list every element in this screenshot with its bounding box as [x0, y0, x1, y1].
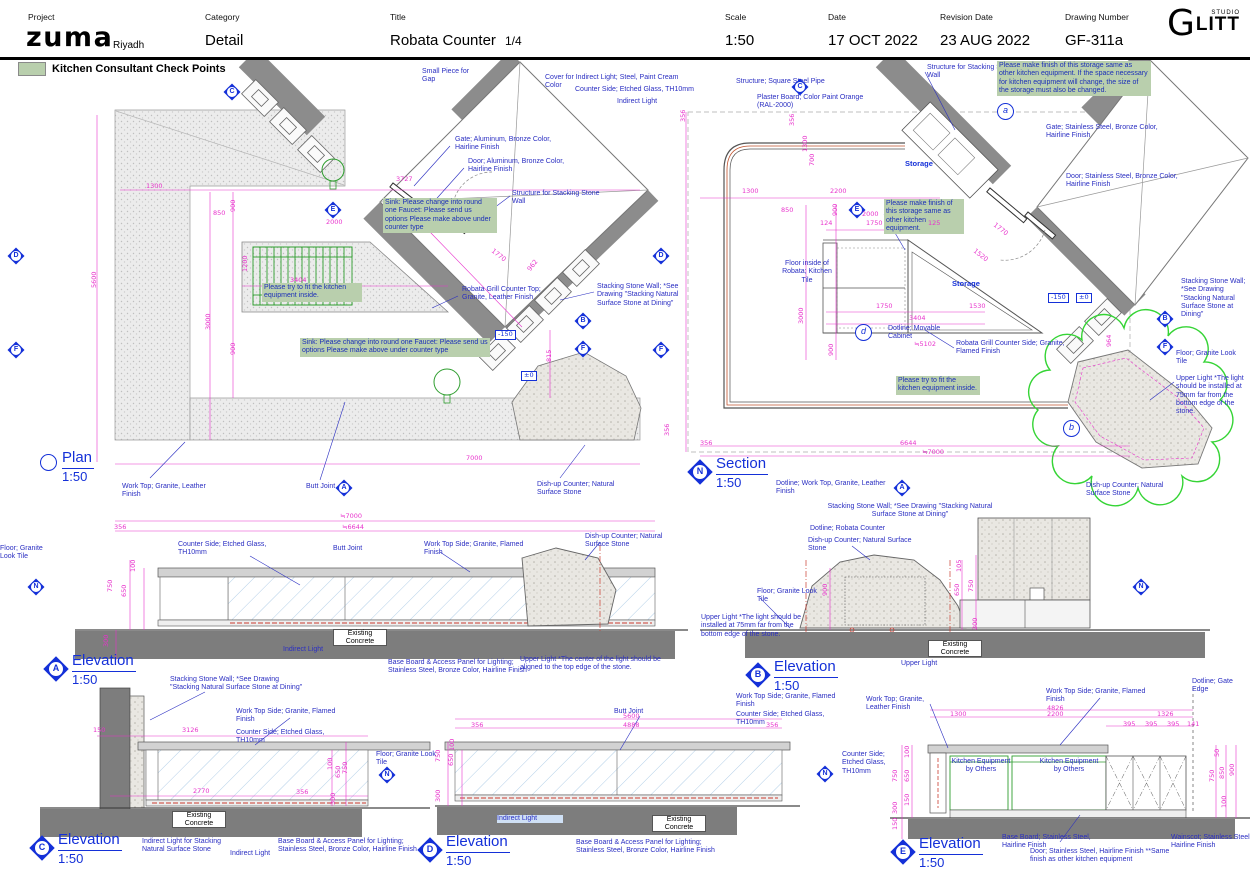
annotation-note: Kitchen Equipment by Others — [950, 758, 1012, 775]
reference-circle-b: b — [1063, 420, 1080, 437]
project-city: Riyadh — [113, 40, 144, 51]
annotation-note: Counter Side; Etched Glass, TH10mm — [736, 711, 834, 728]
annotation-note: Door; Stainless Steel, Bronze Color, Hai… — [1066, 173, 1188, 190]
date-label: Date — [828, 12, 846, 22]
annotation-note: Structure for Stacking Stone Wall — [512, 190, 602, 207]
annotation-note: Work Top; Granite, Leather Finish — [122, 483, 214, 500]
dimension-label: 650 — [904, 770, 912, 782]
dimension-label: 356 — [296, 789, 308, 797]
annotation-note: Indirect Light — [617, 98, 677, 106]
annotation-note: Robata Grill Counter Side; Granite, Flam… — [956, 340, 1076, 357]
annotation-note: Floor; Granite Look Tile — [0, 545, 58, 562]
dimension-label: 300 — [892, 802, 900, 814]
revision-value: 23 AUG 2022 — [940, 32, 1030, 49]
dimension-label: 100 — [904, 746, 912, 758]
dimension-label: 750 — [1209, 770, 1217, 782]
dimension-label: 1750 — [876, 303, 893, 311]
dimension-label: ≒7000 — [340, 513, 362, 521]
title-block: Project zuma Riyadh Category Detail Titl… — [0, 0, 1250, 60]
dimension-label: 100 — [130, 560, 138, 572]
annotation-note: Work Top Side; Granite, Flamed Finish — [1046, 688, 1158, 705]
annotation-note: Work Top; Granite, Leather Finish — [866, 696, 938, 713]
level-tag: ±0 — [1076, 293, 1092, 303]
annotation-note: Work Top Side; Granite, Flamed Finish — [424, 541, 532, 558]
annotation-note: Dish-up Counter; Natural Surface Stone — [808, 537, 918, 554]
dimension-label: 7000 — [466, 455, 483, 463]
dimension-label: 100 — [1221, 796, 1229, 808]
dimension-label: 850 — [1219, 767, 1227, 779]
dimension-label: 1200 — [242, 255, 250, 272]
scale-label: Scale — [725, 12, 746, 22]
annotation-note: Work Top Side; Granite, Flamed Finish — [736, 693, 846, 710]
dimension-label: 3404 — [909, 315, 926, 323]
material-tag: Existing Concrete — [928, 640, 982, 657]
view-title: Elevation1:50 — [774, 658, 838, 693]
check-point-swatch — [18, 62, 46, 76]
view-title: Plan1:50 — [62, 449, 94, 484]
annotation-note: Door; Aluminum, Bronze Color, Hairline F… — [468, 158, 578, 175]
dimension-label: 5600 — [91, 271, 99, 288]
consultant-check-note: Please try to fit the kitchen equipment … — [262, 283, 362, 302]
title-label: Title — [390, 12, 406, 22]
dimension-label: 356 — [789, 114, 797, 126]
title-page: 1/4 — [505, 34, 522, 48]
dimension-label: 395 — [1123, 721, 1135, 729]
annotation-note: Robata Grill Counter Top; Granite, Leath… — [462, 286, 548, 303]
title-value: Robata Counter — [390, 32, 496, 49]
dimension-label: 1770 — [489, 248, 507, 264]
dimension-label: 850 — [781, 207, 793, 215]
dimension-label: 650 — [448, 754, 456, 766]
annotation-note: Upper Light *The light should be install… — [701, 614, 816, 639]
revision-label: Revision Date — [940, 12, 993, 22]
legend-label: Kitchen Consultant Check Points — [52, 63, 226, 75]
annotation-note: Indirect Light — [283, 646, 345, 654]
dimension-label: 356 — [700, 440, 712, 448]
reference-circle-o — [40, 454, 57, 471]
dimension-label: 1770 — [991, 222, 1009, 238]
glitt-logo: G STUDIO LITT — [1167, 4, 1240, 44]
dimension-label: ≒5102 — [914, 341, 936, 349]
annotation-note: Base Board & Access Panel for Lighting; … — [278, 838, 418, 855]
dimension-label: 356 — [766, 722, 778, 730]
annotation-note: Plaster Board; Color Paint Orange (RAL-2… — [757, 94, 869, 111]
dimension-label: 900 — [822, 584, 830, 596]
dimension-label: 700 — [809, 154, 817, 166]
category-label: Category — [205, 12, 240, 22]
dimension-label: 300 — [972, 618, 980, 630]
annotation-note: Gate; Stainless Steel, Bronze Color, Hai… — [1046, 124, 1164, 141]
level-tag: -150 — [1048, 293, 1069, 303]
dimension-label: 6644 — [900, 440, 917, 448]
dimension-label: 100 — [449, 739, 457, 751]
annotation-note: Counter Side; Etched Glass, TH10mm — [178, 541, 273, 558]
annotation-note: Stacking Stone Wall; *See Drawing "Stack… — [1181, 278, 1247, 319]
annotation-note: Structure; Square Steel Pipe — [736, 78, 834, 86]
annotation-note: Floor; Granite Look Tile — [1176, 350, 1238, 367]
material-tag: Existing Concrete — [333, 629, 387, 646]
number-label: Drawing Number — [1065, 12, 1129, 22]
view-title: Elevation1:50 — [446, 833, 510, 868]
dimension-label: 2000 — [326, 219, 343, 227]
dimension-label: 1750 — [866, 220, 883, 228]
dimension-label: 750 — [435, 750, 443, 762]
dimension-label: 3000 — [205, 313, 213, 330]
annotation-note: Stacking Stone Wall; *See Drawing "Stack… — [170, 676, 305, 693]
dimension-label: 900 — [1229, 764, 1237, 776]
dimension-label: 1520 — [971, 248, 989, 264]
category-value: Detail — [205, 32, 243, 49]
annotation-note: Upper Light *The light should be install… — [1176, 375, 1246, 416]
dimension-label: 2200 — [830, 188, 847, 196]
consultant-check-note: Please make finish of this storage same … — [997, 61, 1151, 96]
dimension-label: 2200 — [1047, 711, 1064, 719]
annotation-note: Base Board & Access Panel for Lighting; … — [388, 659, 528, 676]
dimension-label: 900 — [828, 344, 836, 356]
dimension-label: 150 — [93, 727, 105, 735]
dimension-label: 650 — [121, 585, 129, 597]
dimension-label: 356 — [114, 524, 126, 532]
annotation-note: Dish-up Counter; Natural Surface Stone — [1086, 482, 1184, 499]
annotation-note: Kitchen Equipment by Others — [1036, 758, 1102, 775]
glitt-logo-litt: LITT — [1196, 16, 1240, 34]
date-value: 17 OCT 2022 — [828, 32, 918, 49]
number-value: GF-311a — [1065, 32, 1123, 49]
view-title: Elevation1:50 — [72, 652, 136, 687]
dimension-label: 5600 — [623, 713, 640, 721]
dimension-label: 1530 — [969, 303, 986, 311]
reference-circle-d: d — [855, 324, 872, 341]
storage-label: Storage — [905, 160, 933, 169]
drawing-sheet: Project zuma Riyadh Category Detail Titl… — [0, 0, 1250, 883]
annotation-note: Floor; Granite Look Tile — [376, 751, 438, 768]
level-tag: ±0 — [521, 371, 537, 381]
dimension-label: 850 — [213, 210, 225, 218]
dimension-label: 3126 — [182, 727, 199, 735]
consultant-check-note: Please try to fit the kitchen equipment … — [896, 376, 980, 395]
dimension-label: 900 — [230, 200, 238, 212]
dimension-label: 150 — [904, 794, 912, 806]
dimension-label: 2770 — [193, 788, 210, 796]
dimension-label: 3000 — [798, 307, 806, 324]
view-title: Elevation1:50 — [919, 835, 983, 870]
dimension-label: 300 — [435, 790, 443, 802]
dimension-label: 1326 — [1157, 711, 1174, 719]
dimension-label: 300 — [103, 635, 111, 647]
view-title: Section1:50 — [716, 455, 768, 490]
dimension-label: 2000 — [862, 211, 879, 219]
dimension-label: 750 — [968, 580, 976, 592]
annotation-note: Door; Stainless Steel, Hairline Finish *… — [1030, 848, 1185, 865]
dimension-label: 150 — [892, 818, 900, 830]
annotation-note: Dish-up Counter; Natural Surface Stone — [585, 533, 673, 550]
dimension-label: 3727 — [396, 176, 413, 184]
dimension-label: 50 — [1214, 749, 1222, 757]
dimension-label: 141 — [1187, 721, 1199, 729]
dimension-label: 1300 — [742, 188, 759, 196]
storage-label: Storage — [952, 280, 980, 289]
annotation-note: Stacking Stone Wall; *See Drawing "Stack… — [597, 283, 689, 308]
dimension-label: 900 — [832, 204, 840, 216]
annotation-note: Indirect Light — [497, 815, 563, 823]
annotation-note: Floor inside of Robata; Kitchen Tile — [776, 260, 838, 285]
zuma-logo: zuma — [26, 22, 113, 53]
dimension-label: 964 — [1106, 335, 1114, 347]
project-label: Project — [28, 12, 54, 22]
dimension-label: ≒7000 — [922, 449, 944, 457]
annotation-note: Butt Joint — [614, 708, 666, 716]
annotation-note: Wainscot; Stainless Steel, Hairline Fini… — [1171, 834, 1250, 851]
consultant-check-note: Sink: Please change into round one Fauce… — [300, 338, 490, 357]
material-tag: Existing Concrete — [652, 815, 706, 832]
dimension-label: 1300 — [146, 183, 163, 191]
annotation-note: Gate; Aluminum, Bronze Color, Hairline F… — [455, 136, 565, 153]
annotation-note: Base Board & Access Panel for Lighting; … — [576, 839, 716, 856]
annotation-note: Small Piece for Gap — [422, 68, 484, 85]
annotation-note: Upper Light *The center of the light sho… — [520, 656, 675, 673]
legend: Kitchen Consultant Check Points — [18, 62, 226, 76]
consultant-check-note: Please make finish of this storage same … — [884, 199, 964, 234]
dimension-label: 356 — [471, 722, 483, 730]
level-tag: -150 — [495, 330, 516, 340]
dimension-label: 650 — [954, 584, 962, 596]
scale-value: 1:50 — [725, 32, 754, 49]
annotation-note: Dish-up Counter; Natural Surface Stone — [537, 481, 629, 498]
dimension-label: 395 — [1145, 721, 1157, 729]
annotation-overlay: Small Piece for GapCover for Indirect Li… — [0, 0, 1250, 883]
dimension-label: 1300 — [802, 135, 810, 152]
annotation-note: Dotline; Work Top, Granite, Leather Fini… — [776, 480, 896, 497]
glitt-logo-g: G — [1167, 4, 1195, 44]
material-tag: Existing Concrete — [172, 811, 226, 828]
dimension-label: 900 — [230, 343, 238, 355]
dimension-label: 300 — [330, 793, 338, 805]
consultant-check-note: Sink: Please change into round one Fauce… — [383, 198, 497, 233]
dimension-label: 962 — [526, 259, 540, 274]
dimension-label: 4888 — [623, 722, 640, 730]
dimension-label: 750 — [107, 580, 115, 592]
annotation-note: Floor; Granite Look Tile — [757, 588, 819, 605]
dimension-label: 124 — [820, 220, 832, 228]
dimension-label: 3404 — [290, 277, 307, 285]
dimension-label: 815 — [546, 350, 554, 362]
dimension-label: 395 — [1167, 721, 1179, 729]
annotation-note: Butt Joint — [333, 545, 385, 553]
dimension-label: ≒6644 — [342, 524, 364, 532]
annotation-note: Indirect Light for Stacking Natural Surf… — [142, 838, 232, 855]
dimension-label: 356 — [680, 110, 688, 122]
annotation-note: Upper Light — [901, 660, 961, 668]
dimension-label: 105 — [956, 560, 964, 572]
dimension-label: 1300 — [950, 711, 967, 719]
dimension-label: 750 — [892, 770, 900, 782]
view-title: Elevation1:50 — [58, 831, 122, 866]
annotation-note: Dotline; Gate Edge — [1192, 678, 1248, 695]
annotation-note: Work Top Side; Granite, Flamed Finish — [236, 708, 348, 725]
dimension-label: 750 — [342, 762, 350, 774]
dimension-label: 125 — [928, 220, 940, 228]
annotation-note: Stacking Stone Wall; *See Drawing "Stack… — [825, 503, 995, 520]
annotation-note: Dotline; Robata Counter — [810, 525, 922, 533]
dimension-label: 356 — [664, 424, 672, 436]
annotation-note: Counter Side; Etched Glass, TH10mm — [575, 86, 700, 94]
reference-circle-a: a — [997, 103, 1014, 120]
annotation-note: Counter Side; Etched Glass, TH10mm — [236, 729, 334, 746]
